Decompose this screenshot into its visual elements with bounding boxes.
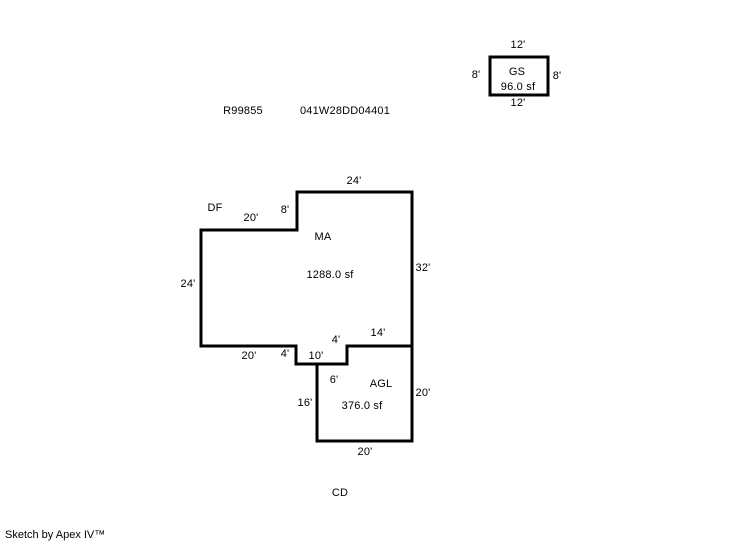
- record-id-label: R99855: [223, 105, 263, 117]
- gs-bottom-dim-label: 12': [511, 97, 526, 109]
- ma-right-dim-label: 32': [416, 262, 431, 274]
- agl-right-dim-label: 20': [416, 387, 431, 399]
- ma-name-label: MA: [315, 231, 332, 243]
- agl-bottom-dim-label: 20': [358, 446, 373, 458]
- ma-area-label: 1288.0 sf: [306, 269, 353, 281]
- ma-upper-left-dim-label: 20': [244, 212, 259, 224]
- gs-area-label: 96.0 sf: [501, 81, 535, 93]
- ma-notch-right-dim-label: 4': [332, 334, 341, 346]
- ma-top-dim-label: 24': [347, 175, 362, 187]
- ma-bottom-right-dim-label: 14': [371, 327, 386, 339]
- cd-name-label: CD: [332, 487, 348, 499]
- gs-left-dim-label: 8': [472, 69, 481, 81]
- gs-top-dim-label: 12': [511, 39, 526, 51]
- ma-left-dim-label: 24': [181, 278, 196, 290]
- agl-outline: [317, 346, 412, 441]
- sketch-drawing: [0, 0, 746, 547]
- sketch-canvas: R99855 041W28DD04401 12' 8' GS 8' 96.0 s…: [0, 0, 746, 547]
- ma-notch-bottom-dim-label: 10': [309, 350, 324, 362]
- parcel-id-label: 041W28DD04401: [300, 105, 390, 117]
- ma-upper-step-dim-label: 8': [281, 204, 290, 216]
- gs-name-label: GS: [509, 66, 525, 78]
- agl-name-label: AGL: [370, 378, 393, 390]
- ma-bottom-left-dim-label: 20': [242, 350, 257, 362]
- gs-right-dim-label: 8': [553, 70, 562, 82]
- agl-notch-dim-label: 6': [330, 374, 339, 386]
- agl-left-dim-label: 16': [298, 397, 313, 409]
- agl-area-label: 376.0 sf: [342, 400, 383, 412]
- sketch-credit: Sketch by Apex IV™: [5, 529, 105, 541]
- ma-notch-left-dim-label: 4': [281, 348, 290, 360]
- df-name-label: DF: [207, 202, 222, 214]
